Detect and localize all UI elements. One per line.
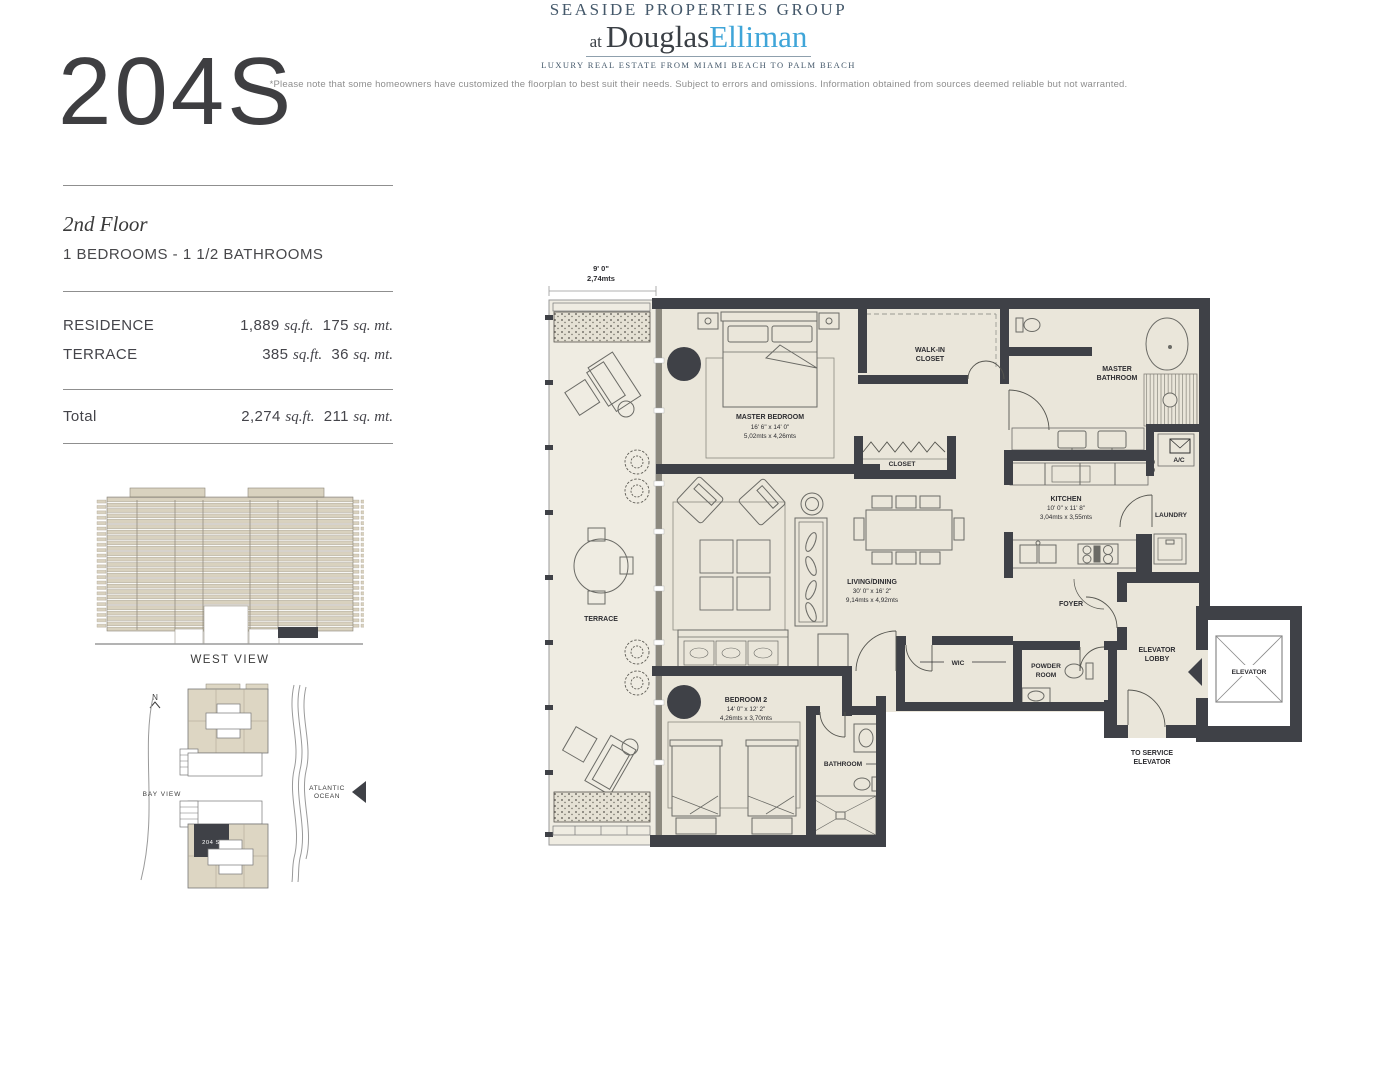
west-view-label: WEST VIEW: [190, 654, 269, 666]
terrace-label: TERRACE: [584, 616, 618, 623]
total-label: Total: [63, 408, 97, 426]
area-row-terrace: TERRACE 385 sq.ft. 36 sq. mt.: [63, 346, 393, 364]
svg-text:14' 0" x 12' 2": 14' 0" x 12' 2": [727, 706, 766, 713]
column: [667, 685, 701, 719]
laundry-label: LAUNDRY: [1155, 512, 1188, 519]
residence-sqft: 1,889: [240, 317, 280, 334]
floor-plan: 9' 0" 2,74mts: [538, 252, 1312, 880]
elevator-label: ELEVATOR: [1232, 669, 1267, 676]
elevator-lobby-label: ELEVATOR: [1139, 647, 1176, 654]
ground-opening: [204, 606, 248, 644]
roof-block: [130, 488, 205, 497]
bay-shoreline: [141, 697, 153, 880]
closet-label: CLOSET: [889, 461, 916, 468]
svg-text:BATHROOM: BATHROOM: [1097, 375, 1138, 382]
disclaimer-text: *Please note that some homeowners have c…: [0, 79, 1397, 90]
east-pointer-icon: [352, 781, 366, 803]
foyer-label: FOYER: [1059, 601, 1083, 608]
area-row-residence: RESIDENCE 1,889 sq.ft. 175 sq. mt.: [63, 317, 393, 335]
ground-opening: [175, 629, 203, 644]
svg-text:LOBBY: LOBBY: [1145, 656, 1170, 663]
master-bedroom-label: MASTER BEDROOM: [736, 414, 804, 421]
svg-text:ROOM: ROOM: [1036, 672, 1057, 679]
configuration-label: 1 BEDROOMS - 1 1/2 BATHROOMS: [63, 246, 323, 263]
ocean-label-1: ATLANTIC: [309, 785, 345, 792]
floor-label: 2nd Floor: [63, 212, 148, 237]
walk-in-closet-label: WALK-IN: [915, 347, 945, 354]
brand-tagline: LUXURY REAL ESTATE FROM MIAMI BEACH TO P…: [0, 60, 1397, 70]
svg-text:4,26mts x 3,70mts: 4,26mts x 3,70mts: [720, 715, 772, 722]
bay-view-label: BAY VIEW: [143, 791, 182, 798]
column: [667, 347, 701, 381]
divider: [63, 291, 393, 292]
svg-text:ELEVATOR: ELEVATOR: [1134, 759, 1171, 766]
site-map: N BAY VIEW 204 S: [118, 678, 383, 918]
divider: [63, 443, 393, 444]
ac-label: A/C: [1173, 457, 1185, 464]
master-bathroom-label: MASTER: [1102, 366, 1132, 373]
bedroom2-label: BEDROOM 2: [725, 697, 768, 704]
total-sqmt: 211: [324, 408, 349, 425]
terrace-dimension: 9' 0" 2,74mts: [549, 264, 656, 296]
brand-douglas: Douglas: [606, 19, 709, 54]
room-terrace: TERRACE: [545, 300, 656, 845]
ocean-label-2: OCEAN: [314, 793, 340, 800]
brand-at: at: [590, 32, 602, 51]
total-sqft: 2,274: [241, 408, 281, 425]
svg-text:30' 0" x 16' 2": 30' 0" x 16' 2": [853, 588, 892, 595]
balcony-tabs-right: [353, 499, 364, 629]
svg-text:5,02mts x 4,26mts: 5,02mts x 4,26mts: [744, 433, 796, 440]
terrace-label: TERRACE: [63, 346, 137, 364]
residence-label: RESIDENCE: [63, 317, 154, 335]
svg-text:2,74mts: 2,74mts: [587, 274, 615, 283]
building-north: [180, 684, 268, 776]
unit-location-marker: [278, 627, 318, 638]
footer: SEASIDE PROPERTIES GROUP at DouglasEllim…: [0, 0, 1397, 90]
divider: [63, 389, 393, 390]
svg-text:10' 0" x 11' 8": 10' 0" x 11' 8": [1047, 505, 1085, 512]
unit-marker-label: 204 S: [202, 840, 220, 846]
service-elevator-label: TO SERVICE: [1131, 750, 1173, 757]
bathroom-label: BATHROOM: [824, 761, 863, 768]
wic-label: WIC: [952, 660, 965, 667]
roof-block: [248, 488, 324, 497]
kitchen-label: KITCHEN: [1050, 496, 1081, 503]
terrace-sqft: 385: [262, 346, 288, 363]
service-door-opening: [1128, 725, 1166, 738]
living-dining-label: LIVING/DINING: [847, 579, 897, 586]
residence-sqmt: 175: [323, 317, 349, 334]
brand-elliman: Elliman: [709, 19, 807, 54]
svg-text:CLOSET: CLOSET: [916, 356, 945, 363]
svg-text:16' 6" x 14' 0": 16' 6" x 14' 0": [751, 424, 790, 431]
brand-group-name: SEASIDE PROPERTIES GROUP: [0, 0, 1397, 20]
powder-room-label: POWDER: [1031, 663, 1061, 670]
svg-text:9,14mts x 4,92mts: 9,14mts x 4,92mts: [846, 597, 898, 604]
balcony-tabs-left: [96, 499, 107, 629]
svg-text:3,04mts x 3,55mts: 3,04mts x 3,55mts: [1040, 514, 1092, 521]
ocean-shoreline: [292, 685, 309, 882]
svg-text:9' 0": 9' 0": [593, 264, 609, 273]
area-row-total: Total 2,274 sq.ft. 211 sq. mt.: [63, 408, 393, 426]
west-view-elevation: WEST VIEW: [88, 480, 378, 675]
divider: [63, 185, 393, 186]
ground-opening: [249, 629, 279, 644]
building-south: 204 S: [180, 801, 268, 888]
terrace-sqmt: 36: [331, 346, 349, 363]
brand-logo: at DouglasElliman: [586, 21, 812, 57]
